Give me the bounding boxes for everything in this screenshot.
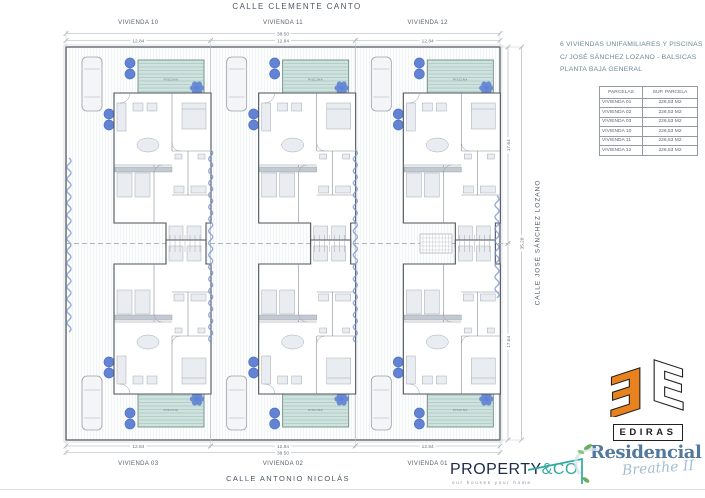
dimension-label: 12.84 — [132, 444, 144, 450]
parcel-name: VIVIENDA 10 — [600, 127, 643, 137]
parcel-area: 226,53 M2 — [643, 136, 698, 146]
dimension-label: 12.84 — [132, 38, 144, 44]
pool-label: PISCINA — [164, 408, 179, 412]
column-header: PARCELAS — [600, 87, 643, 99]
street-label-top: CALLE CLEMENTE CANTO — [97, 2, 497, 11]
parcel-name: VIVIENDA 02 — [600, 108, 643, 118]
dimension-label: 17.64 — [506, 335, 512, 347]
parcel-area: 226,53 M2 — [643, 127, 698, 137]
column-header: SUP. PARCELA — [643, 87, 698, 99]
pool-label: PISCINA — [453, 78, 468, 82]
parcel-area: 226,53 M2 — [643, 146, 698, 156]
ediras-logo: E E EDIRAS — [598, 341, 698, 441]
lot-label-top: VIVIENDA 12 — [407, 20, 448, 26]
title-block: 6 VIVIENDAS UNIFAMILIARES Y PISCINAS C/ … — [560, 39, 705, 77]
pool-label: PISCINA — [308, 408, 323, 412]
svg-text:E: E — [607, 355, 645, 417]
parcel-name: VIVIENDA 12 — [600, 146, 643, 156]
lot-label-bottom: VIVIENDA 01 — [407, 461, 448, 467]
lot-label-top: VIVIENDA 11 — [263, 20, 303, 26]
table-header-row: PARCELASSUP. PARCELA — [600, 87, 698, 99]
dimension-label: 12.84 — [277, 38, 289, 44]
svg-text:E: E — [649, 347, 687, 417]
dimension-label: 17.64 — [506, 139, 512, 151]
ediras-wordmark: EDIRAS — [613, 424, 684, 441]
street-label-right: CALLE JOSÉ SÁNCHEZ LOZANO — [535, 162, 542, 324]
dimension-label: 12.84 — [277, 444, 289, 450]
pool-label: PISCINA — [164, 78, 179, 82]
parcels-table: PARCELASSUP. PARCELAVIVIENDA 01226,53 M2… — [599, 86, 698, 156]
parcel-name: VIVIENDA 11 — [600, 136, 643, 146]
plan-name: PLANTA BAJA GENERAL — [560, 64, 705, 77]
lot-label-bottom: VIVIENDA 02 — [263, 461, 304, 467]
table-row: VIVIENDA 02226,53 M2 — [600, 108, 698, 118]
table-row: VIVIENDA 10226,53 M2 — [600, 127, 698, 137]
dimension-label: 38.50 — [277, 450, 289, 456]
table-row: VIVIENDA 11226,53 M2 — [600, 136, 698, 146]
parcel-name: VIVIENDA 01 — [600, 98, 643, 108]
parcel-area: 226,53 M2 — [643, 98, 698, 108]
ediras-3d-e-icon: E E — [600, 341, 696, 417]
floor-plan-sheet: PISCINAPISCINAPISCINAPISCINAPISCINAPISCI… — [0, 0, 705, 498]
dimension-label: 35.28 — [519, 237, 525, 249]
lot-label-top: VIVIENDA 10 — [118, 20, 159, 26]
project-title: 6 VIVIENDAS UNIFAMILIARES Y PISCINAS — [560, 39, 705, 52]
dimension-label: 12.84 — [422, 444, 434, 450]
project-address: C/ JOSÉ SÁNCHEZ LOZANO - BALSICAS — [560, 52, 705, 65]
table-row: VIVIENDA 03226,53 M2 — [600, 117, 698, 127]
parcel-name: VIVIENDA 03 — [600, 117, 643, 127]
parcel-area: 226,53 M2 — [643, 117, 698, 127]
dimension-label: 12.84 — [422, 38, 434, 44]
pool-label: PISCINA — [453, 408, 468, 412]
residencial-breathe-logo: Residencial Breathe II — [576, 442, 704, 476]
lot-label-bottom: VIVIENDA 03 — [118, 461, 159, 467]
street-label-bottom: CALLE ANTONIO NICOLÁS — [88, 474, 488, 483]
pool-label: PISCINA — [308, 78, 323, 82]
parcel-area: 226,53 M2 — [643, 108, 698, 118]
footer-divider — [0, 489, 705, 490]
dimension-label: 38.50 — [277, 31, 289, 37]
table-row: VIVIENDA 12226,53 M2 — [600, 146, 698, 156]
table-row: VIVIENDA 01226,53 M2 — [600, 98, 698, 108]
